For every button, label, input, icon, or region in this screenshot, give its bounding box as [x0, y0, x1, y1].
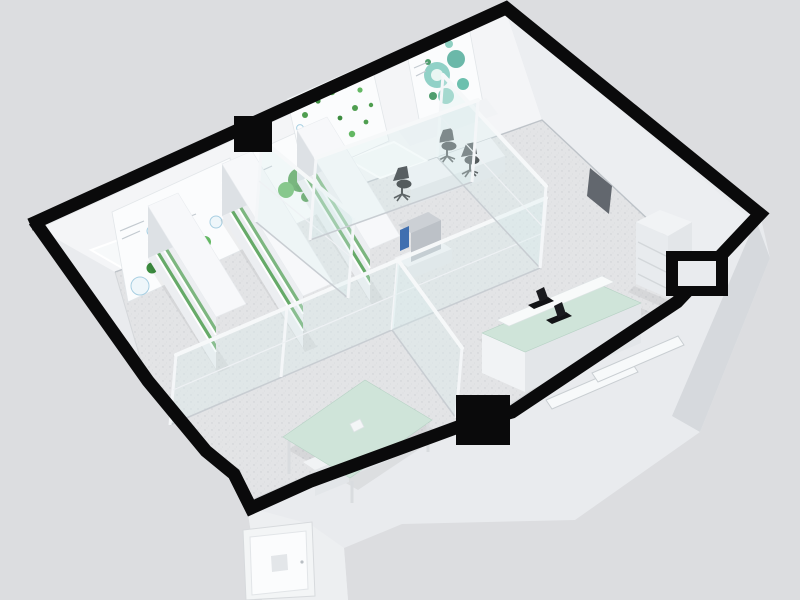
door-handle — [300, 560, 303, 563]
service-niche — [666, 251, 728, 296]
lab-render — [0, 0, 800, 600]
analyzer-screen — [400, 226, 409, 251]
lab-floorplan-svg — [0, 0, 800, 600]
wall-column — [234, 116, 272, 152]
wall-column — [456, 395, 510, 445]
exterior-door — [243, 522, 315, 600]
door-vent — [271, 554, 288, 572]
